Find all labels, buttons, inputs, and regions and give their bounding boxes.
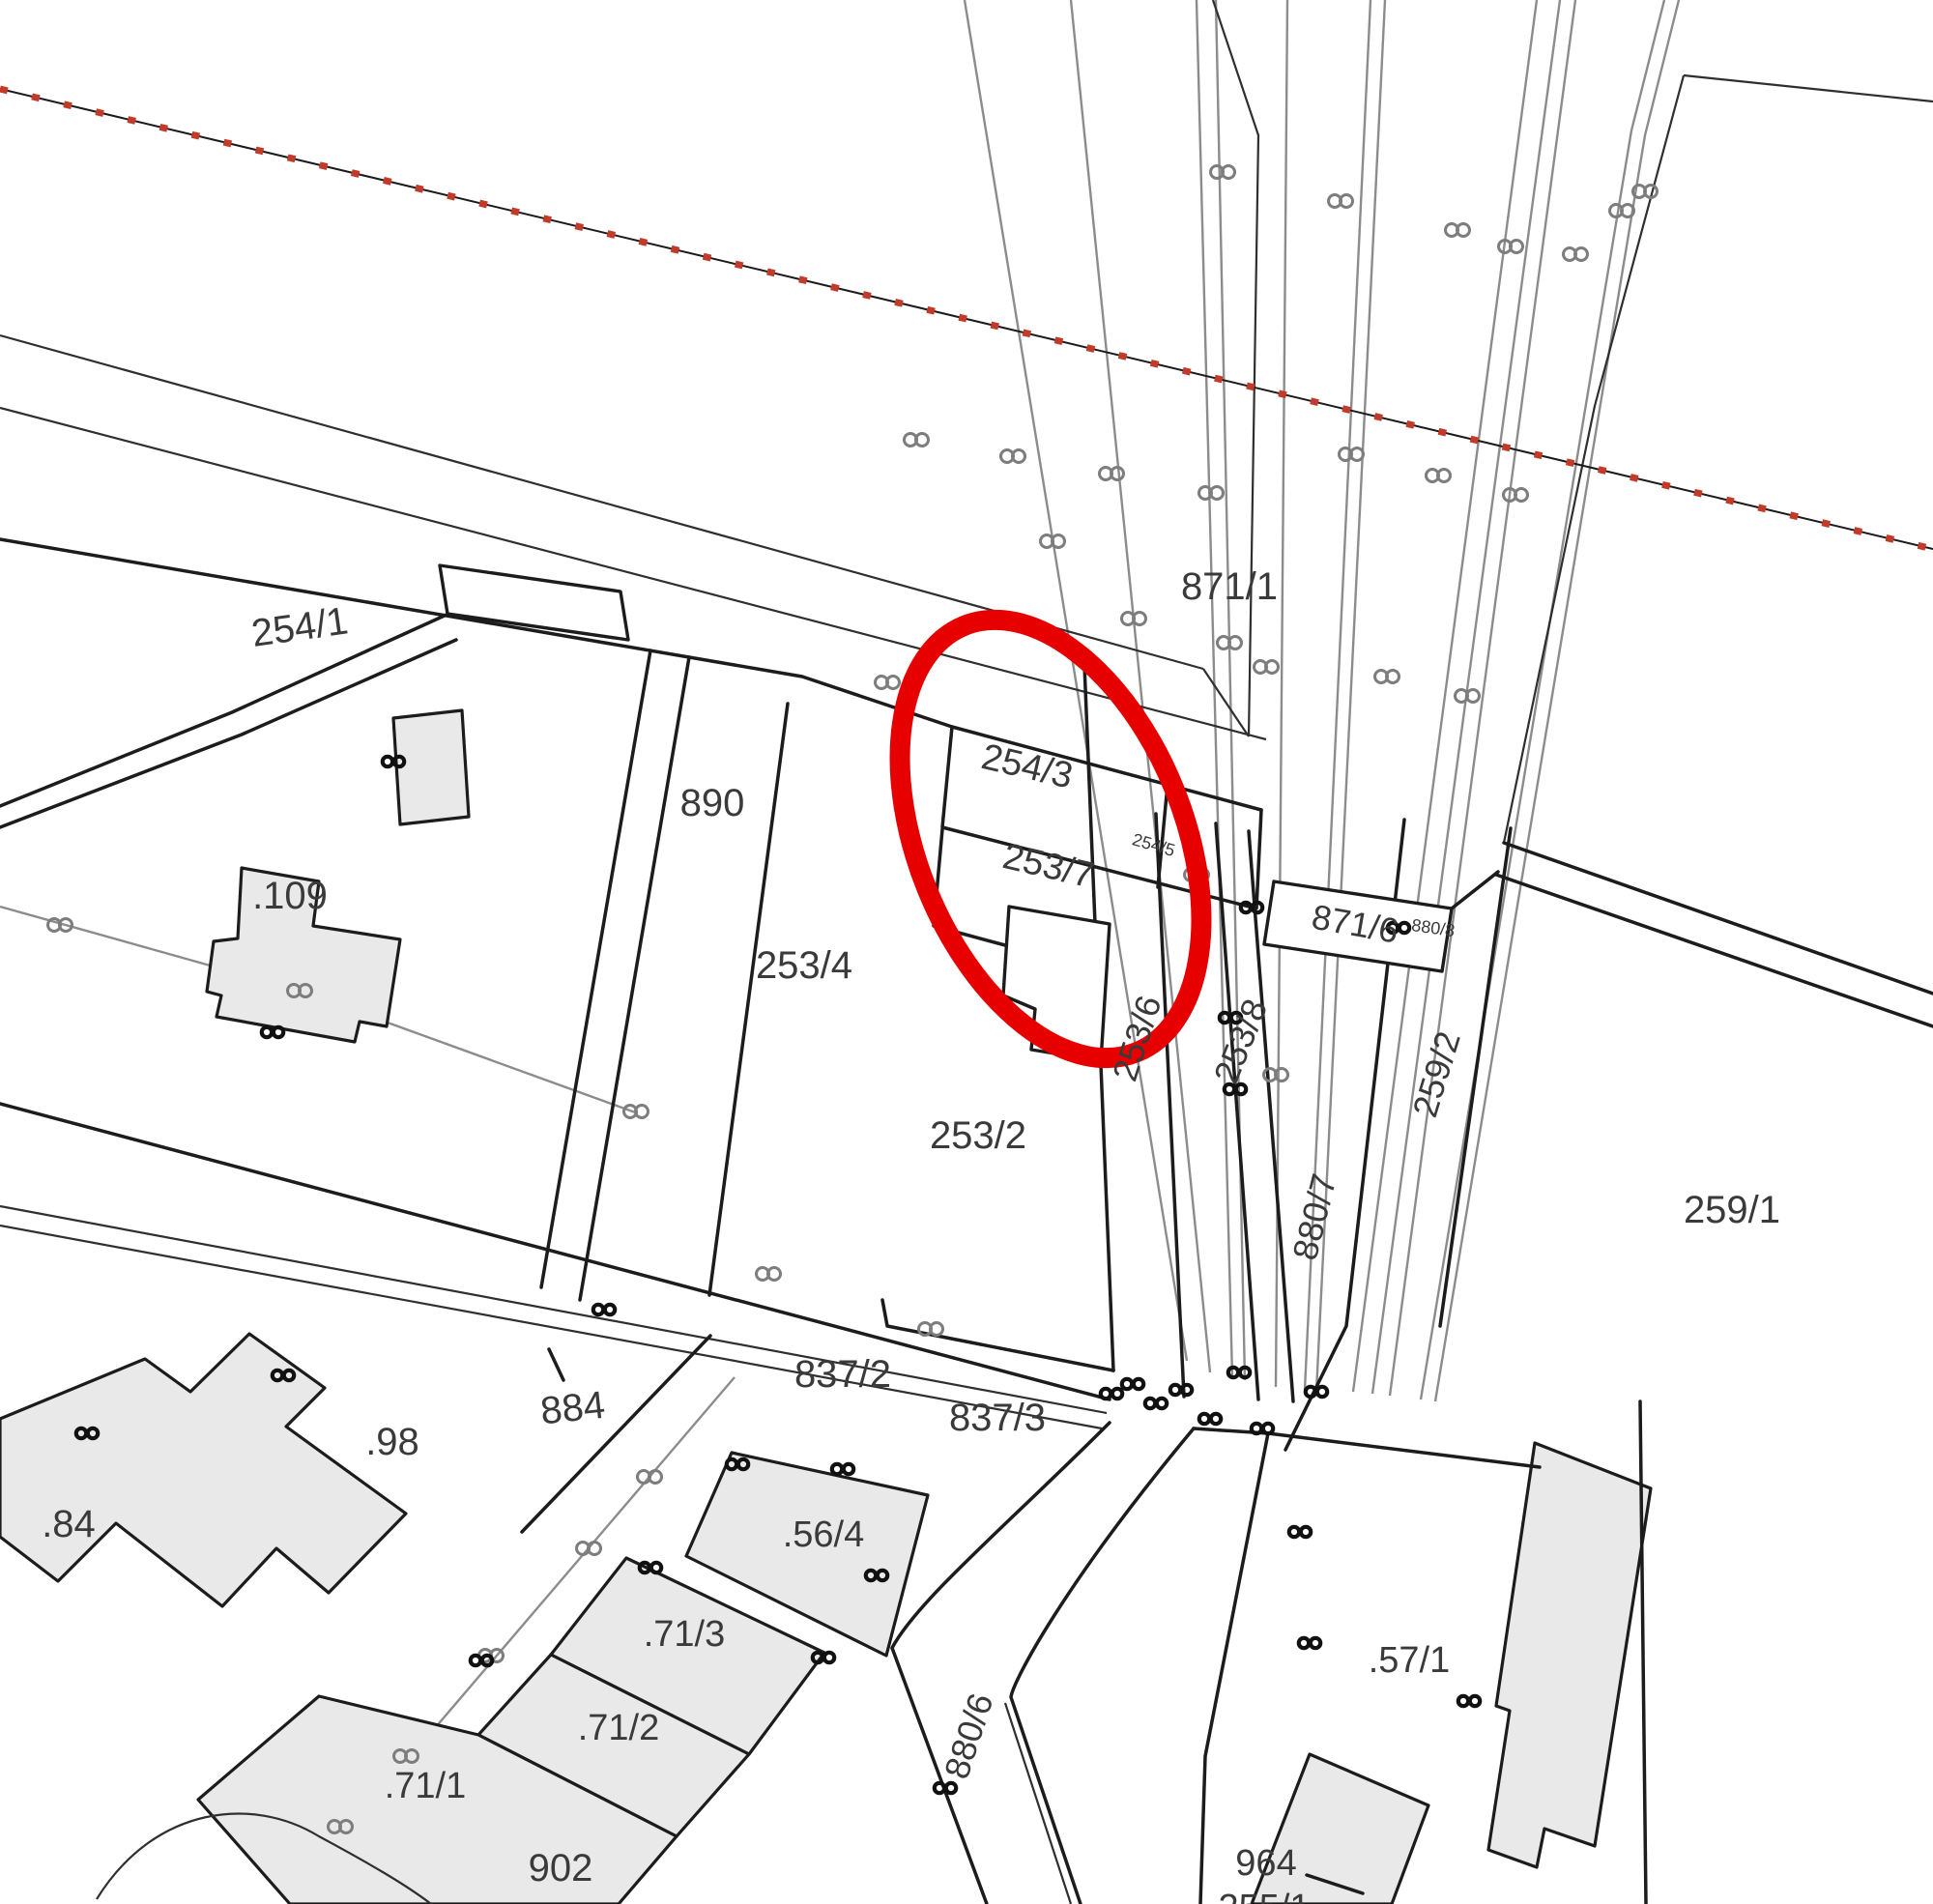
parcel-label-880-7: 880/7 — [1284, 1169, 1344, 1263]
parcel-label-255-1: 255/1 — [1218, 1888, 1310, 1904]
survey-marker-icon — [1255, 661, 1279, 674]
parcel-label--57-1: .57/1 — [1369, 1640, 1451, 1681]
buildings — [0, 710, 1651, 1904]
survey-marker-icon — [624, 1106, 649, 1118]
boundary-marker-icon — [1252, 1424, 1273, 1433]
parcel-label--109: .109 — [252, 875, 328, 917]
parcel-label-254-1: 254/1 — [249, 599, 351, 655]
parcel-label-902: 902 — [529, 1847, 593, 1890]
survey-marker-icon — [1122, 613, 1146, 625]
survey-marker-icon — [577, 1543, 601, 1555]
survey-marker-icon — [1001, 450, 1025, 463]
boundary-marker-icon — [832, 1464, 853, 1474]
survey-marker-icon — [1504, 489, 1528, 502]
cadastral-map-view[interactable]: 254/1890.109253/4253/2871/1254/3253/7254… — [0, 0, 1933, 1904]
parcel-label-837-2: 837/2 — [794, 1353, 891, 1396]
parcel-label-964: 964 — [1235, 1843, 1296, 1884]
boundary-marker-icon — [1101, 1389, 1122, 1399]
parcel-label--84: .84 — [42, 1503, 96, 1545]
boundary-marker-line — [0, 89, 1933, 549]
boundary-marker-icon — [1170, 1385, 1192, 1395]
building-57-1 — [1488, 1443, 1651, 1867]
boundary-marker-icon — [1241, 903, 1262, 912]
parcel-label-259-2: 259/2 — [1404, 1026, 1468, 1121]
survey-marker-icon — [1199, 487, 1224, 500]
map-canvas[interactable]: 254/1890.109253/4253/2871/1254/3253/7254… — [0, 0, 1933, 1904]
survey-marker-icon — [1218, 637, 1242, 649]
parcel-rect-top — [440, 565, 628, 640]
parcel-label-253-7: 253/7 — [999, 836, 1098, 896]
parcel-label--71-2: .71/2 — [578, 1708, 660, 1748]
survey-marker-icon — [1499, 241, 1523, 253]
parcel-label--71-3: .71/3 — [644, 1614, 726, 1655]
parcel-label-253-2: 253/2 — [930, 1114, 1026, 1157]
building-84 — [0, 1334, 406, 1606]
building-small-254-1 — [393, 710, 469, 824]
parcel-label-259-1: 259/1 — [1684, 1189, 1780, 1231]
parcel-label-871-1: 871/1 — [1181, 565, 1278, 608]
survey-marker-icon — [1446, 224, 1470, 237]
survey-marker-icon — [876, 677, 900, 689]
boundary-marker-icon — [1299, 1638, 1320, 1648]
boundary-marker-icon — [1199, 1414, 1221, 1424]
survey-marker-icon — [1564, 248, 1588, 261]
parcel-label-880-6: 880/6 — [937, 1688, 1001, 1783]
survey-marker-icon — [757, 1268, 781, 1281]
survey-marker-icon — [1375, 671, 1399, 683]
parcel-label-253-4: 253/4 — [756, 944, 852, 987]
survey-marker-icon — [1610, 205, 1634, 217]
boundary-marker-icon — [1458, 1696, 1480, 1706]
parcel-label-254-3: 254/3 — [978, 736, 1077, 796]
survey-marker-icon — [1041, 535, 1065, 548]
parcel-label--56-4: .56/4 — [783, 1515, 865, 1555]
boundary-marker-icon — [1289, 1527, 1311, 1537]
survey-marker-icon — [1456, 690, 1480, 703]
parcel-label-884: 884 — [538, 1384, 607, 1433]
boundary-marker-icon — [1145, 1399, 1167, 1408]
survey-marker-icon — [1329, 195, 1353, 208]
parcel-label--98: .98 — [365, 1421, 419, 1463]
survey-marker-icon — [1427, 470, 1451, 482]
survey-marker-icon — [1340, 448, 1364, 461]
parcel-label--71-1: .71/1 — [385, 1766, 467, 1806]
boundary-marker-icon — [1122, 1379, 1143, 1389]
parcel-label-254-5: 254/5 — [1130, 829, 1177, 860]
boundary-marker-icon — [1306, 1387, 1327, 1397]
parcel-label-890: 890 — [680, 782, 745, 824]
parcel-label-837-3: 837/3 — [949, 1397, 1046, 1439]
survey-marker-icon — [905, 434, 929, 447]
boundary-marker-icon — [935, 1783, 956, 1793]
survey-marker-icon — [919, 1323, 943, 1336]
boundary-marker-icon — [262, 1027, 283, 1037]
boundary-marker-icon — [593, 1305, 615, 1314]
survey-marker-icon — [638, 1471, 662, 1484]
survey-marker-icon — [1211, 166, 1235, 179]
